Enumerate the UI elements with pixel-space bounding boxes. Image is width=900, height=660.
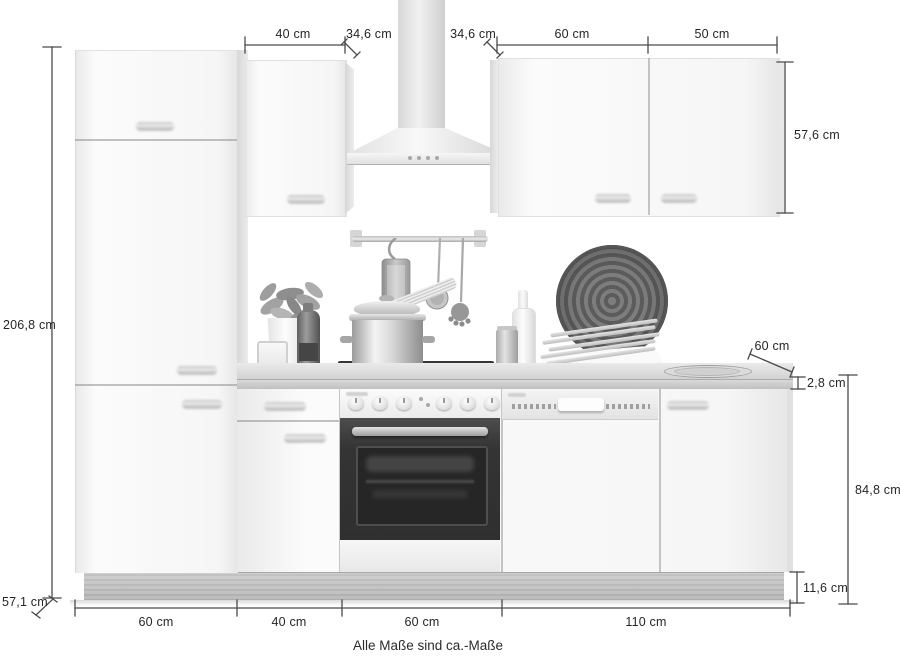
wall-cabinet-right-door2-handle [661, 194, 697, 202]
wall-cabinet-right-side-left [490, 60, 498, 213]
dim-line-wall-right-depth [484, 39, 503, 58]
wall-cabinet-right [498, 58, 780, 217]
pasta-server-tooth [465, 318, 470, 323]
oven-door-handle [352, 427, 488, 436]
pot-handle-left [340, 336, 353, 343]
oil-bottle-label [299, 343, 318, 361]
dim-label-wall-right-width-1: 60 cm [532, 27, 612, 41]
dim-label-wall-left-depth: 34,6 cm [346, 27, 392, 41]
dim-label-tall-depth: 57,1 cm [2, 595, 48, 609]
dishwasher-handle [558, 398, 604, 411]
dim-label-base-width-3: 60 cm [382, 615, 462, 629]
oven-indicator-light [426, 403, 430, 407]
oven-window-reflection [366, 456, 474, 472]
dishwasher-brand-label [508, 393, 526, 397]
hood-button [435, 156, 439, 160]
dim-label-base-height: 84,8 cm [855, 483, 900, 497]
wall-cabinet-left-side [345, 62, 354, 214]
hood-button [408, 156, 412, 160]
dim-label-wall-left-width: 40 cm [253, 27, 333, 41]
dim-line-worktop-thickness [791, 377, 805, 389]
dim-label-base-width-1: 60 cm [116, 615, 196, 629]
dishwasher-program-marks-left [512, 404, 556, 409]
wall-cabinet-left-handle [287, 195, 325, 203]
dim-label-wall-height: 57,6 cm [794, 128, 840, 142]
pasta-server-tooth [448, 316, 453, 321]
dim-line-plinth-height [790, 572, 804, 603]
base40-drawer-divider [237, 420, 339, 422]
tall-cabinet-middle-door-handle [177, 366, 217, 374]
dim-label-wall-right-width-2: 50 cm [672, 27, 752, 41]
base-divider [659, 389, 661, 572]
white-bottle-neck [518, 290, 528, 310]
pasta-server-tooth [459, 321, 464, 326]
hood-canopy [347, 128, 505, 154]
hood-duct [398, 0, 445, 132]
grater-hook [389, 238, 396, 259]
wall-cabinet-left [245, 60, 347, 217]
oven-lower-panel [340, 540, 500, 572]
pasta-server-tooth [453, 320, 458, 325]
oven-knob [348, 396, 364, 410]
tall-cabinet-top-door-handle [136, 122, 174, 130]
dim-label-worktop-depth: 60 cm [748, 339, 796, 353]
tall-cabinet-bottom-door-handle [182, 400, 222, 408]
hood-button [426, 156, 430, 160]
sink-basin [674, 367, 740, 376]
pot-handle-right [422, 336, 435, 343]
oven-knob [436, 396, 452, 410]
base40-drawer-handle [264, 402, 306, 410]
oven-knob [484, 396, 500, 410]
wall-cabinet-right-door1-handle [595, 194, 631, 202]
oven-knob [460, 396, 476, 410]
sink-cabinet-door-handle [667, 401, 709, 409]
floor-shadow [70, 600, 794, 606]
dishwasher-program-marks-right [606, 404, 650, 409]
oven-indicator-light [419, 397, 423, 401]
dim-label-base-width-2: 40 cm [249, 615, 329, 629]
tall-cabinet-door-divider-bottom [75, 384, 237, 386]
wall-cabinet-right-divider [648, 58, 650, 215]
oven-window-rack [366, 480, 474, 483]
oven-window-reflection [372, 490, 468, 498]
base40-door-handle [284, 434, 326, 442]
oil-bottle [297, 310, 320, 371]
dim-line-wall-left-depth [341, 39, 360, 58]
dim-label-worktop-thickness: 2,8 cm [807, 376, 846, 390]
oil-bottle-cap [303, 303, 313, 312]
wall-cabinet-right-side-right [778, 62, 784, 214]
pasta-server-head [451, 303, 469, 321]
dim-label-wall-right-depth: 34,6 cm [436, 27, 496, 41]
tall-cabinet-door-divider-top [75, 139, 237, 141]
base-right-side-panel [787, 389, 793, 572]
footer-note: Alle Maße sind ca.-Maße [318, 638, 538, 653]
oven-knob [372, 396, 388, 410]
dim-label-plinth-height: 11,6 cm [803, 581, 848, 595]
dim-label-tall-height: 206,8 cm [3, 318, 56, 332]
product-dimension-diagram: 40 cm 34,6 cm 34,6 cm 60 cm 50 cm 57,6 c… [0, 0, 900, 660]
hood-button [417, 156, 421, 160]
pasta-server-handle [461, 238, 463, 302]
oven-knob [396, 396, 412, 410]
plinth [84, 572, 784, 601]
dim-label-base-width-4: 110 cm [601, 615, 691, 629]
